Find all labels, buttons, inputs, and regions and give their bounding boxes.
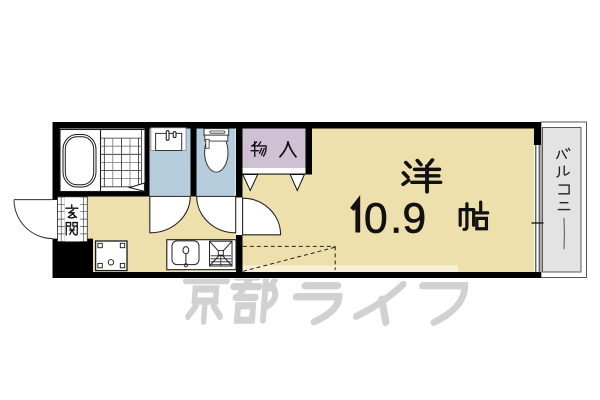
svg-text:0.9: 0.9 xyxy=(364,196,426,243)
